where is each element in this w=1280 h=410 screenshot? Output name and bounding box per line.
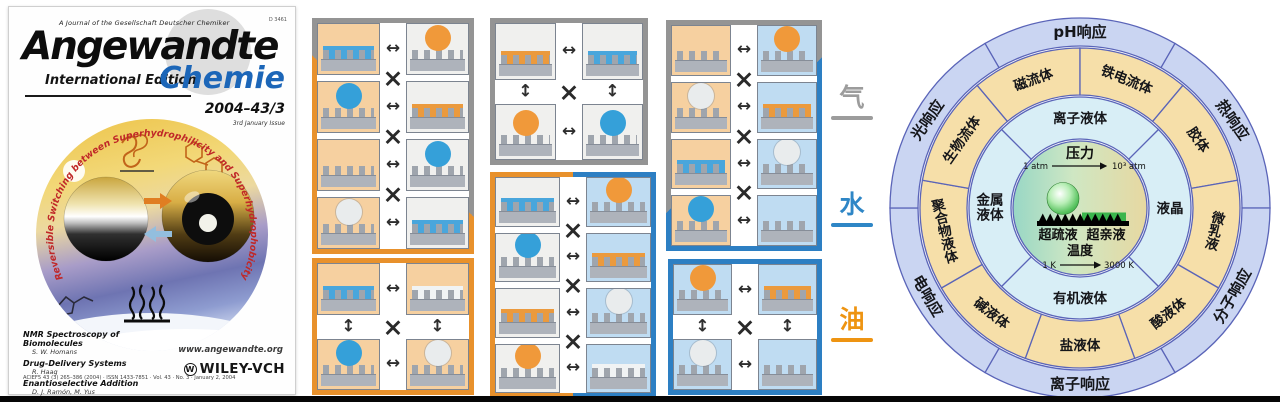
- exchange-arrow: ↔: [737, 155, 751, 172]
- substrate-cell-orange-droplet: [586, 177, 651, 227]
- white-film: [412, 286, 463, 290]
- article-item: Enantioselective Addition D. J. Ramón, M…: [23, 379, 173, 396]
- orange-droplet: [513, 110, 539, 136]
- exchange-arrow: ↔: [738, 281, 752, 298]
- substrate-cell-blue-film: [495, 177, 560, 227]
- journal-title-accent: Chemie: [159, 61, 285, 96]
- exchange-arrow: ↕: [518, 83, 532, 100]
- white-droplet: [690, 340, 716, 366]
- substrate-cell-orange-film: [586, 233, 651, 283]
- publisher-name: WILEY-VCH: [200, 361, 285, 377]
- journal-website: www.angewandte.org: [178, 345, 283, 355]
- exchange-arrow: ↕: [780, 319, 794, 336]
- responsive-liquids-wheel: pH响应热响应分子响应离子响应电响应光响应磁流体铁电流体胶体微乳液酸液体盐液体碱…: [880, 6, 1280, 406]
- exchange-arrow: ↔: [386, 41, 400, 58]
- substrate-cell-orange-droplet: [406, 23, 469, 75]
- blue-droplet: [600, 110, 626, 136]
- substrate-cell-blue-film: [317, 263, 380, 315]
- substrate-cell-blue-droplet: [671, 195, 731, 246]
- white-droplet: [688, 83, 714, 109]
- substrate-cell-blue-film: [317, 23, 380, 75]
- exchange-arrow: ↔: [386, 280, 400, 297]
- substrate-cell-white-droplet: [406, 339, 469, 391]
- orange-droplet: [606, 177, 632, 203]
- orange-droplet: [774, 26, 800, 52]
- orange-film: [763, 104, 811, 108]
- substrate-cell-orange-film: [495, 23, 556, 80]
- pressure-label: 压力: [1066, 145, 1094, 162]
- matrix-block-oil-gas: ↔×↔×↔×↔: [312, 18, 474, 254]
- publisher: W WILEY-VCH: [184, 361, 285, 377]
- superlyophobic-caption: 超疏液: [1038, 227, 1077, 243]
- pressure-scale-max: 10³ atm: [1112, 162, 1146, 172]
- substrate-cell-blue-droplet: [317, 81, 380, 133]
- article-list: NMR Spectroscopy of Biomolecules S. W. H…: [23, 327, 173, 396]
- article-item: Drug-Delivery Systems R. Haag: [23, 359, 173, 376]
- ring-label: pH响应: [1053, 23, 1106, 41]
- substrate-cell-orange-film: [406, 81, 469, 133]
- blue-droplet: [336, 340, 362, 366]
- orange-film: [501, 51, 550, 55]
- blue-film: [412, 220, 463, 224]
- issue-note: 3rd January Issue: [233, 120, 285, 127]
- substrate-cell-blue-droplet: [317, 339, 380, 391]
- blue-droplet: [515, 233, 541, 259]
- exchange-arrow: ↔: [737, 99, 751, 116]
- exchange-arrow: ↔: [562, 123, 576, 140]
- surface-base: [1037, 221, 1129, 226]
- exchange-arrow: ↔: [386, 215, 400, 232]
- blue-droplet: [425, 141, 451, 167]
- temperature-scale-max: 3000 K: [1104, 261, 1134, 271]
- substrate-cell-bare: [317, 139, 380, 191]
- liquid-droplet: [1047, 183, 1079, 215]
- substrate-cell-orange-droplet: [495, 344, 560, 394]
- orange-film: [501, 309, 554, 313]
- gas-underline: [831, 116, 873, 121]
- no-exchange-mark: ×: [383, 314, 404, 339]
- no-exchange-mark: ×: [563, 217, 584, 242]
- substrate-cell-white-droplet: [673, 339, 732, 390]
- substrate-cell-orange-droplet: [495, 104, 556, 161]
- white-droplet: [336, 199, 362, 225]
- blue-droplet: [336, 83, 362, 109]
- matrix-block-gas-water: ↔×↔×↔×↔: [490, 172, 656, 398]
- orange-droplet: [690, 265, 716, 291]
- white-droplet: [606, 288, 632, 314]
- article-item: NMR Spectroscopy of Biomolecules S. W. H…: [23, 330, 173, 356]
- medium-label-gas: 气: [822, 84, 882, 120]
- no-exchange-mark: ×: [383, 182, 404, 207]
- substrate-cell-orange-film: [758, 264, 817, 315]
- substrate-cell-bare: [758, 339, 817, 390]
- postal-code: D 3461: [269, 17, 287, 23]
- substrate-cell-orange-droplet: [673, 264, 732, 315]
- exchange-arrow: ↕: [430, 318, 444, 335]
- exchange-arrow: ↕: [605, 83, 619, 100]
- no-exchange-mark: ×: [735, 315, 756, 340]
- exchange-arrow: ↔: [566, 193, 580, 210]
- no-exchange-mark: ×: [734, 180, 755, 205]
- blue-film: [677, 160, 725, 164]
- blue-film: [323, 46, 374, 50]
- substrate-cell-blue-droplet: [495, 233, 560, 283]
- issue-number: 2004–43/3: [205, 101, 285, 117]
- substrate-cell-blue-droplet: [406, 139, 469, 191]
- exchange-arrow: ↔: [562, 43, 576, 60]
- white-film: [592, 364, 645, 368]
- no-exchange-mark: ×: [734, 66, 755, 91]
- temperature-label: 温度: [1067, 243, 1094, 259]
- bottom-rule: [0, 396, 1280, 402]
- ring-label: 有机液体: [1053, 290, 1107, 307]
- substrate-cell-bare: [757, 195, 817, 246]
- no-exchange-mark: ×: [563, 273, 584, 298]
- orange-film: [764, 286, 811, 290]
- substrate-cell-orange-film: [495, 288, 560, 338]
- water-underline: [831, 223, 873, 228]
- temperature-scale-min: 1 K: [1042, 261, 1056, 271]
- blue-film: [501, 198, 554, 202]
- substrate-cell-white-droplet: [317, 197, 380, 249]
- superhydrophilic-sphere: [64, 177, 148, 261]
- substrate-cell-white-film: [406, 263, 469, 315]
- substrate-cell-bare: [671, 25, 731, 76]
- matrix-block-gas-gas: ↔↔↕↕×: [490, 18, 648, 165]
- exchange-arrow: ↕: [695, 319, 709, 336]
- substrate-cell-white-film: [586, 344, 651, 394]
- article-authors: S. W. Homans: [32, 348, 173, 356]
- no-exchange-mark: ×: [383, 124, 404, 149]
- orange-droplet: [515, 344, 541, 370]
- substrate-cell-blue-droplet: [582, 104, 643, 161]
- cover-art: Reversible Switching between Superhydrop…: [36, 119, 268, 351]
- substrate-cell-blue-film: [406, 197, 469, 249]
- exchange-arrow: ↔: [386, 356, 400, 373]
- matrix-block-oil-oil: ↔↔↕↕×: [312, 258, 474, 395]
- oil-underline: [831, 338, 873, 343]
- ring-label: 离子响应: [1050, 375, 1110, 393]
- superlyophilic-caption: 超亲液: [1086, 227, 1125, 243]
- exchange-arrow: ↔: [566, 249, 580, 266]
- journal-cover: A Journal of the Gesellschaft Deutscher …: [8, 6, 296, 395]
- no-exchange-mark: ×: [383, 66, 404, 91]
- no-exchange-mark: ×: [734, 123, 755, 148]
- blue-droplet: [688, 196, 714, 222]
- wiley-logo-icon: W: [184, 363, 197, 376]
- matrix-block-oil-water: ↔×↔×↔×↔: [666, 20, 822, 251]
- orange-film: [592, 253, 645, 257]
- exchange-arrow: ↕: [341, 318, 355, 335]
- exchange-arrow: ↔: [738, 356, 752, 373]
- medium-char: 水: [839, 190, 864, 219]
- substrate-cell-white-droplet: [671, 82, 731, 133]
- exchange-arrow: ↔: [737, 42, 751, 59]
- substrate-cell-white-droplet: [757, 139, 817, 190]
- ring-label: 金属液体: [976, 192, 1005, 224]
- exchange-arrow: ↔: [566, 360, 580, 377]
- pressure-scale-min: 1 atm: [1023, 162, 1048, 172]
- ring-label: 盐液体: [1060, 337, 1101, 354]
- molecule-bottom: [58, 297, 93, 315]
- exchange-arrow: ↔: [737, 212, 751, 229]
- figure: A Journal of the Gesellschaft Deutscher …: [0, 0, 1280, 403]
- orange-film: [412, 104, 463, 108]
- blue-film: [323, 286, 374, 290]
- article-title: NMR Spectroscopy of Biomolecules: [23, 330, 173, 348]
- ring-label: 离子液体: [1053, 110, 1107, 127]
- blue-film: [588, 51, 637, 55]
- exchange-arrow: ↔: [566, 304, 580, 321]
- substrate-cell-blue-film: [671, 139, 731, 190]
- white-droplet: [425, 340, 451, 366]
- no-exchange-mark: ×: [559, 79, 580, 104]
- ring-label: 液晶: [1157, 200, 1184, 217]
- substrate-cell-orange-droplet: [757, 25, 817, 76]
- article-authors: D. J. Ramón, M. Yus: [32, 388, 173, 396]
- orange-droplet: [425, 25, 451, 51]
- wettability-matrix: ↔×↔×↔×↔↔↔↕↕×↔↔↕↕×↔×↔×↔×↔↔×↔×↔×↔↔↔↕↕× 气 水…: [300, 0, 880, 403]
- exchange-arrow: ↔: [386, 99, 400, 116]
- medium-label-oil: 油: [822, 306, 882, 342]
- substrate-cell-blue-film: [582, 23, 643, 80]
- exchange-arrow: ↔: [386, 157, 400, 174]
- article-title: Drug-Delivery Systems: [23, 359, 173, 368]
- substrate-cell-orange-film: [757, 82, 817, 133]
- white-droplet: [774, 139, 800, 165]
- wheel-center: 压力 1 atm 10³ atm 超疏液 超亲液 温度 1 K 3000 K: [1013, 141, 1147, 275]
- medium-char: 油: [839, 305, 864, 334]
- medium-label-water: 水: [822, 191, 882, 227]
- substrate-cell-white-droplet: [586, 288, 651, 338]
- medium-char: 气: [839, 83, 864, 112]
- no-exchange-mark: ×: [563, 328, 584, 353]
- matrix-block-water-water: ↔↔↕↕×: [668, 259, 822, 395]
